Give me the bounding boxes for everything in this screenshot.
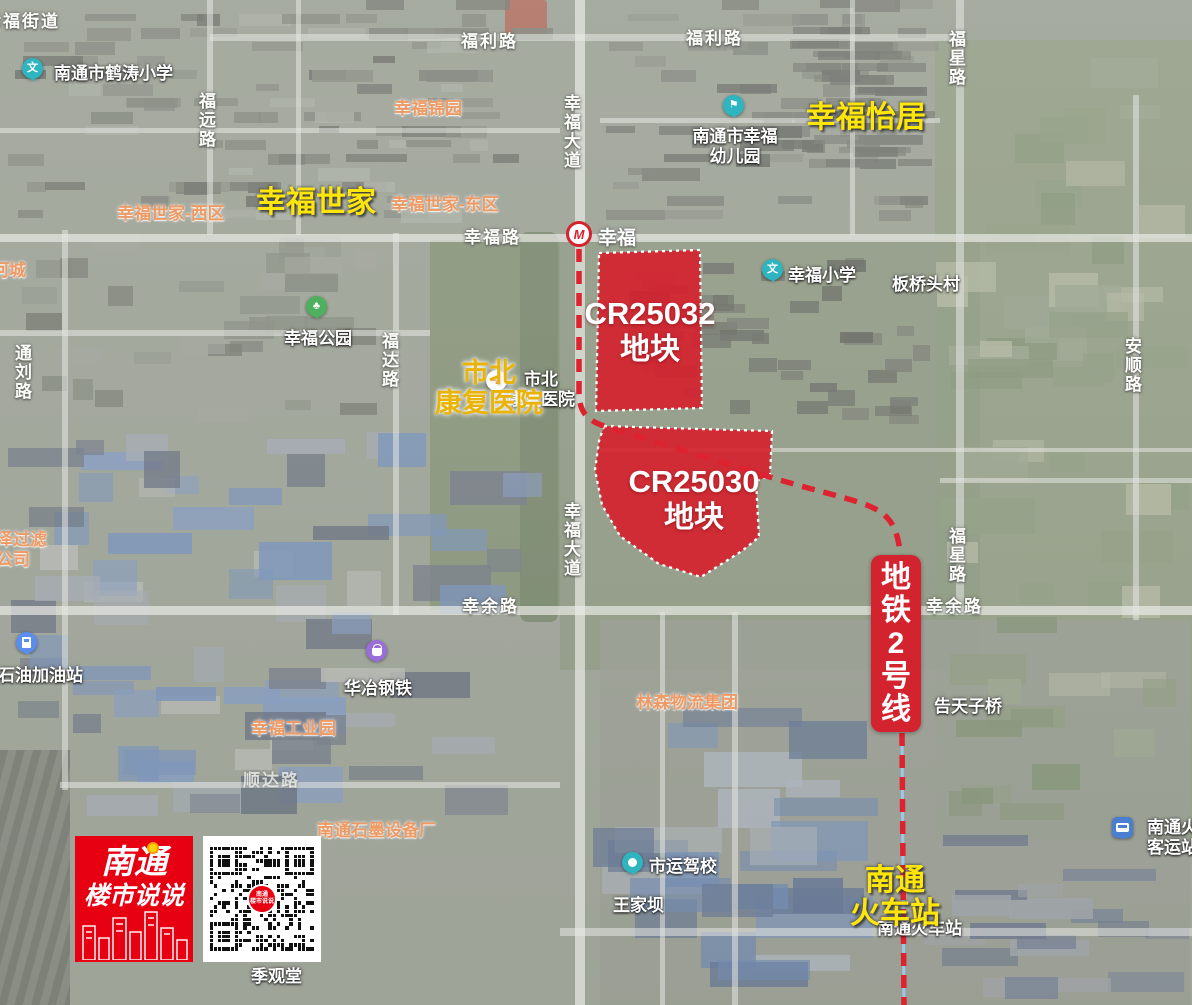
qr-module	[231, 872, 235, 876]
qr-module	[310, 855, 314, 859]
qr-module	[298, 859, 302, 863]
metro-station-xingfu-label: 幸福	[598, 223, 636, 250]
qr-module	[247, 910, 251, 914]
qr-module	[302, 872, 306, 876]
qr-module	[302, 935, 306, 939]
qr-module	[298, 855, 302, 859]
qr-module	[252, 851, 256, 855]
qr-module	[294, 914, 298, 918]
qr-module	[260, 914, 264, 918]
qr-module	[235, 922, 239, 926]
qr-module	[294, 872, 298, 876]
qr-module	[218, 901, 222, 905]
qr-module	[264, 863, 268, 867]
qr-module	[235, 905, 239, 909]
qr-module	[222, 935, 226, 939]
qr-module	[268, 922, 272, 926]
qr-module	[214, 884, 218, 888]
qr-module	[243, 914, 247, 918]
qr-module	[239, 868, 243, 872]
qr-module	[268, 876, 272, 880]
qr-module	[218, 939, 222, 943]
qr-module	[285, 914, 289, 918]
qr-module	[306, 893, 310, 897]
park-pin-icon: ♣	[306, 296, 327, 317]
qr-module	[252, 880, 256, 884]
qr-module	[285, 947, 289, 951]
qr-module	[310, 947, 314, 951]
qr-module	[231, 947, 235, 951]
qr-module	[214, 910, 218, 914]
qr-module	[235, 918, 239, 922]
qr-module	[231, 918, 235, 922]
school-glyph: 文	[27, 63, 38, 74]
qr-module	[281, 939, 285, 943]
qr-module	[289, 922, 293, 926]
qr-module	[273, 926, 277, 930]
parcel-suffix: 地块	[629, 500, 760, 536]
qr-module	[256, 859, 260, 863]
qr-module	[235, 901, 239, 905]
qr-module	[277, 935, 281, 939]
parcel-cr25032-label: CR25032 地块	[585, 296, 716, 368]
qr-module	[306, 947, 310, 951]
qr-module	[222, 939, 226, 943]
qr-module	[268, 914, 272, 918]
qr-module	[310, 939, 314, 943]
qr-module	[310, 847, 314, 851]
qr-module	[302, 859, 306, 863]
qr-module	[214, 922, 218, 926]
qr-module	[210, 872, 214, 876]
qr-module	[302, 855, 306, 859]
qr-module	[239, 893, 243, 897]
qr-module	[222, 889, 226, 893]
metro-line-2-label: 地铁2号线	[871, 555, 921, 732]
qr-module	[218, 855, 222, 859]
qr-module	[281, 897, 285, 901]
school-pin-icon: 文	[22, 58, 43, 79]
qr-module	[235, 847, 239, 851]
qr-module	[226, 910, 230, 914]
qr-module	[260, 847, 264, 851]
qr-module	[302, 863, 306, 867]
qr-module	[281, 893, 285, 897]
qr-module	[239, 863, 243, 867]
qr-module	[264, 876, 268, 880]
school-pin-icon: 文	[762, 259, 783, 280]
qr-module	[235, 884, 239, 888]
qr-module	[239, 872, 243, 876]
qr-module	[210, 855, 214, 859]
qr-module	[281, 889, 285, 893]
qr-module	[298, 884, 302, 888]
qr-module	[222, 905, 226, 909]
qr-module	[252, 855, 256, 859]
gas-pin-icon	[16, 632, 37, 653]
qr-module	[210, 868, 214, 872]
qr-module	[285, 910, 289, 914]
qr-module	[235, 851, 239, 855]
qr-module	[302, 847, 306, 851]
qr-module	[218, 859, 222, 863]
qr-module	[294, 876, 298, 880]
qr-module	[247, 931, 251, 935]
brand-logo-line1: 南通	[75, 844, 193, 880]
qr-module	[243, 922, 247, 926]
qr-module	[222, 863, 226, 867]
qr-module	[214, 947, 218, 951]
qr-module	[210, 935, 214, 939]
qr-module	[310, 851, 314, 855]
qr-module	[289, 914, 293, 918]
qr-module	[218, 931, 222, 935]
qr-module	[214, 905, 218, 909]
qr-module	[235, 939, 239, 943]
qr-module	[285, 872, 289, 876]
qr-module	[294, 847, 298, 851]
qr-module	[285, 855, 289, 859]
qr-module	[277, 884, 281, 888]
qr-module	[226, 939, 230, 943]
qr-module	[222, 947, 226, 951]
qr-module	[210, 931, 214, 935]
qr-module	[285, 926, 289, 930]
qr-module	[226, 935, 230, 939]
qr-module	[285, 851, 289, 855]
qr-module	[210, 922, 214, 926]
qr-module	[239, 939, 243, 943]
qr-module	[243, 863, 247, 867]
sun-icon	[147, 842, 159, 854]
qr-module	[289, 943, 293, 947]
qr-module	[222, 922, 226, 926]
qr-badge-line1: 南通	[256, 892, 268, 899]
bus-glyph	[1116, 823, 1129, 832]
qr-module	[210, 880, 214, 884]
school-glyph: 文	[767, 264, 778, 275]
qr-module	[243, 847, 247, 851]
qr-module	[298, 922, 302, 926]
qr-module	[277, 943, 281, 947]
qr-module	[210, 863, 214, 867]
kindergarten-pin-icon: ⚑	[723, 95, 744, 116]
qr-module	[239, 851, 243, 855]
qr-module	[256, 880, 260, 884]
qr-module	[277, 922, 281, 926]
qr-module	[210, 859, 214, 863]
qr-module	[298, 935, 302, 939]
qr-module	[277, 905, 281, 909]
qr-module	[243, 939, 247, 943]
qr-module	[285, 884, 289, 888]
parcel-suffix: 地块	[585, 332, 716, 368]
qr-module	[226, 847, 230, 851]
qr-module	[306, 872, 310, 876]
dot-glyph	[628, 858, 637, 867]
qr-module	[302, 939, 306, 943]
qr-badge-line2: 楼市说说	[250, 899, 274, 906]
qr-module	[260, 939, 264, 943]
qr-module	[285, 859, 289, 863]
qr-module	[222, 855, 226, 859]
qr-module	[210, 939, 214, 943]
qr-module	[289, 872, 293, 876]
qr-module	[310, 893, 314, 897]
qr-module	[243, 918, 247, 922]
qr-module	[218, 872, 222, 876]
qr-module	[226, 931, 230, 935]
qr-module	[281, 884, 285, 888]
qr-module	[235, 914, 239, 918]
qr-module	[273, 939, 277, 943]
qr-module	[222, 931, 226, 935]
qr-module	[273, 914, 277, 918]
qr-module	[226, 872, 230, 876]
qr-module	[226, 859, 230, 863]
qr-module	[210, 943, 214, 947]
qr-module	[264, 859, 268, 863]
qr-module	[222, 872, 226, 876]
qr-module	[235, 926, 239, 930]
qr-module	[268, 851, 272, 855]
qr-module	[239, 855, 243, 859]
qr-module	[247, 876, 251, 880]
qr-module	[298, 847, 302, 851]
qr-module	[231, 922, 235, 926]
qr-module	[210, 851, 214, 855]
qr-module	[273, 876, 277, 880]
qr-module	[260, 935, 264, 939]
qr-module	[260, 943, 264, 947]
qr-module	[235, 868, 239, 872]
qr-module	[243, 868, 247, 872]
qr-module	[235, 943, 239, 947]
qr-module	[298, 910, 302, 914]
qr-module	[268, 859, 272, 863]
qr-module	[252, 926, 256, 930]
qr-module	[256, 851, 260, 855]
qr-module	[235, 897, 239, 901]
qr-module	[256, 868, 260, 872]
qr-module	[226, 855, 230, 859]
gas-glyph	[22, 637, 31, 648]
qr-module	[243, 910, 247, 914]
qr-module	[218, 922, 222, 926]
qr-module	[222, 847, 226, 851]
metro-logo-glyph: M	[574, 228, 585, 241]
qr-module	[268, 935, 272, 939]
shop-glyph	[372, 648, 382, 656]
qr-module	[247, 855, 251, 859]
qr-module	[310, 926, 314, 930]
qr-module	[281, 947, 285, 951]
qr-module	[298, 918, 302, 922]
qr-module	[294, 905, 298, 909]
qr-module	[256, 935, 260, 939]
qr-module	[231, 847, 235, 851]
qr-module	[231, 889, 235, 893]
annotation-xingfu-yiju: 幸福怡居	[806, 101, 926, 134]
qr-center-badge: 南通 楼市说说	[247, 884, 277, 914]
qr-module	[277, 859, 281, 863]
qr-module	[243, 926, 247, 930]
qr-module	[218, 863, 222, 867]
qr-module	[210, 847, 214, 851]
parcel-cr25030-label: CR25030 地块	[629, 464, 760, 536]
qr-module	[264, 918, 268, 922]
qr-module	[281, 943, 285, 947]
qr-module	[235, 859, 239, 863]
qr-module	[277, 910, 281, 914]
qr-module	[273, 947, 277, 951]
qr-module	[277, 901, 281, 905]
qr-module	[247, 918, 251, 922]
qr-module	[298, 863, 302, 867]
qr-module	[285, 893, 289, 897]
qr-module	[302, 880, 306, 884]
qr-module	[310, 863, 314, 867]
qr-module	[277, 876, 281, 880]
qr-module	[310, 901, 314, 905]
map-canvas: CR25032 地块 CR25030 地块 幸福街道南通市鹤涛小学幸福锦园幸福世…	[0, 0, 1192, 1005]
park-glyph: ♣	[313, 301, 320, 312]
qr-module	[302, 910, 306, 914]
qr-module	[214, 872, 218, 876]
qr-module	[294, 855, 298, 859]
qr-module	[285, 868, 289, 872]
qr-module	[226, 922, 230, 926]
qr-module	[222, 901, 226, 905]
qr-module	[268, 847, 272, 851]
qr-module	[285, 847, 289, 851]
annotation-shibei-hospital: 市北康复医院	[435, 358, 543, 418]
qr-module	[294, 889, 298, 893]
qr-module	[273, 863, 277, 867]
qr-module	[294, 910, 298, 914]
qr-module	[302, 884, 306, 888]
qr-module	[289, 947, 293, 951]
qr-module	[298, 943, 302, 947]
qr-module	[298, 901, 302, 905]
skyline-graphic	[75, 904, 193, 960]
qr-module	[289, 918, 293, 922]
qr-module	[226, 947, 230, 951]
qr-module	[252, 868, 256, 872]
qr-module	[239, 931, 243, 935]
qr-module	[247, 922, 251, 926]
qr-module	[243, 855, 247, 859]
qr-module	[260, 851, 264, 855]
qr-module	[239, 943, 243, 947]
qr-module	[226, 901, 230, 905]
qr-module	[306, 901, 310, 905]
qr-module	[302, 943, 306, 947]
qr-module	[298, 872, 302, 876]
qr-module	[273, 859, 277, 863]
parcel-id: CR25032	[585, 296, 716, 332]
qr-module	[247, 884, 251, 888]
qr-module	[231, 884, 235, 888]
qr-module	[210, 897, 214, 901]
qr-module	[239, 847, 243, 851]
qr-module	[235, 931, 239, 935]
qr-module	[289, 847, 293, 851]
qr-module	[264, 947, 268, 951]
qr-module	[306, 847, 310, 851]
qr-module	[277, 889, 281, 893]
qr-module	[273, 943, 277, 947]
qr-module	[260, 859, 264, 863]
qr-module	[298, 926, 302, 930]
dot-pin-icon	[622, 852, 643, 873]
qr-code: 南通 楼市说说	[203, 836, 321, 962]
qr-module	[210, 910, 214, 914]
qr-module	[252, 947, 256, 951]
qr-module	[210, 926, 214, 930]
qr-module	[310, 910, 314, 914]
qr-module	[218, 847, 222, 851]
qr-module	[268, 926, 272, 930]
qr-module	[214, 847, 218, 851]
qr-module	[294, 897, 298, 901]
qr-module	[294, 863, 298, 867]
qr-module	[218, 876, 222, 880]
qr-module	[235, 872, 239, 876]
qr-module	[210, 947, 214, 951]
qr-module	[298, 947, 302, 951]
qr-module	[294, 859, 298, 863]
qr-module	[226, 863, 230, 867]
qr-module	[302, 947, 306, 951]
qr-module	[239, 884, 243, 888]
qr-module	[218, 935, 222, 939]
annotation-train-station: 南通火车站	[850, 864, 940, 930]
qr-module	[260, 947, 264, 951]
qr-module	[273, 918, 277, 922]
qr-module	[289, 893, 293, 897]
annotation-xingfu-shijia: 幸福世家	[256, 186, 376, 219]
qr-module	[302, 905, 306, 909]
qr-module	[247, 939, 251, 943]
qr-module	[210, 876, 214, 880]
qr-module	[285, 905, 289, 909]
qr-module	[235, 880, 239, 884]
qr-module	[310, 859, 314, 863]
qr-module	[268, 943, 272, 947]
qr-module	[281, 847, 285, 851]
qr-module	[256, 947, 260, 951]
qr-module	[214, 893, 218, 897]
parcel-id: CR25030	[629, 464, 760, 500]
qr-module	[294, 935, 298, 939]
qr-module	[222, 859, 226, 863]
qr-module	[235, 855, 239, 859]
qr-module	[264, 939, 268, 943]
kindergarten-glyph: ⚑	[729, 100, 739, 111]
qr-module	[235, 947, 239, 951]
qr-module	[277, 851, 281, 855]
bus-pin-icon	[1112, 817, 1133, 838]
brand-logo: 南通 楼市说说	[75, 836, 193, 962]
qr-module	[285, 863, 289, 867]
qr-module	[294, 901, 298, 905]
qr-module	[256, 926, 260, 930]
qr-module	[310, 872, 314, 876]
shop-pin-icon	[366, 640, 387, 661]
qr-module	[306, 889, 310, 893]
qr-module	[210, 914, 214, 918]
